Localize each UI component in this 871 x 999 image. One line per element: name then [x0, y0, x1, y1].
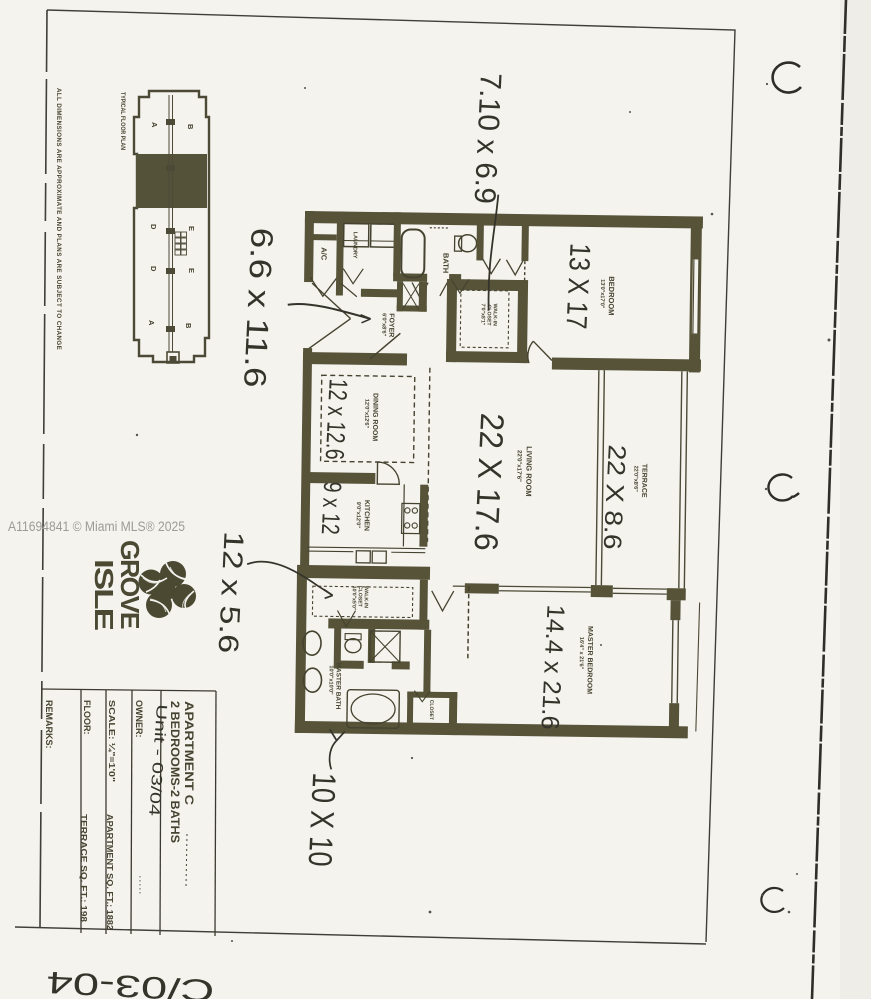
- svg-text:REMARKS:: REMARKS:: [44, 700, 54, 749]
- svg-text:CLOSET: CLOSET: [428, 700, 434, 720]
- svg-text:6'0"x8'6": 6'0"x8'6": [380, 313, 386, 337]
- svg-text:ISLE: ISLE: [89, 559, 119, 631]
- svg-text:22 X 8.6: 22 X 8.6: [598, 444, 631, 550]
- svg-text:E: E: [187, 226, 196, 231]
- svg-text:7.10 x 6.9: 7.10 x 6.9: [468, 72, 507, 204]
- svg-text:D: D: [149, 266, 158, 272]
- svg-text:OWNER:: OWNER:: [134, 700, 144, 738]
- svg-text:APARTMENT SQ. FT.: 1882: APARTMENT SQ. FT.: 1882: [105, 814, 114, 931]
- svg-text:10 X 10: 10 X 10: [302, 772, 344, 868]
- svg-text:APARTMENT C: APARTMENT C: [182, 701, 194, 805]
- svg-text:DINING ROOM: DINING ROOM: [371, 393, 379, 441]
- svg-text:B: B: [184, 323, 193, 329]
- svg-text:KITCHEN: KITCHEN: [363, 500, 370, 531]
- svg-text:TERRACE: TERRACE: [640, 464, 647, 498]
- svg-text:MASTER BEDROOM: MASTER BEDROOM: [585, 626, 593, 694]
- svg-text:12'0"x12'6": 12'0"x12'6": [363, 399, 369, 429]
- svg-text:A: A: [150, 122, 159, 128]
- svg-text:FLOOR:: FLOOR:: [82, 700, 92, 735]
- svg-text:A11694841 © Miami MLS® 2025: A11694841 © Miami MLS® 2025: [8, 519, 185, 534]
- svg-text:22 X 17.6: 22 X 17.6: [468, 412, 512, 552]
- svg-text:13'0"x17'0": 13'0"x17'0": [599, 279, 605, 309]
- svg-text:22'0"x17'6": 22'0"x17'6": [515, 450, 521, 482]
- svg-text:SCALE: ¼"=1'0": SCALE: ¼"=1'0": [107, 700, 117, 782]
- svg-text:TYPICAL FLOOR PLAN: TYPICAL FLOOR PLAN: [119, 92, 126, 150]
- svg-text:12 x 12.6: 12 x 12.6: [320, 378, 354, 460]
- svg-text:9'0"x12'0": 9'0"x12'0": [355, 502, 361, 529]
- svg-text:13 X 17: 13 X 17: [559, 242, 595, 329]
- svg-text:BATH: BATH: [441, 253, 450, 273]
- svg-text:B: B: [186, 124, 195, 130]
- svg-text:7'0"x8'1": 7'0"x8'1": [479, 303, 485, 325]
- svg-text:10'0"x10'0": 10'0"x10'0": [327, 665, 333, 695]
- svg-text:A: A: [147, 320, 156, 326]
- svg-text:12 x 5.6: 12 x 5.6: [213, 531, 250, 654]
- svg-text:LIVING ROOM: LIVING ROOM: [524, 446, 534, 497]
- svg-text:LAUNDRY: LAUNDRY: [351, 232, 357, 259]
- svg-text:MASTER BATH: MASTER BATH: [334, 662, 342, 709]
- svg-text:BEDROOM: BEDROOM: [607, 276, 617, 315]
- svg-text:FOYER: FOYER: [387, 313, 394, 337]
- svg-text:TERRACE SQ. FT.: 198: TERRACE SQ. FT.: 198: [79, 814, 88, 923]
- svg-text:E: E: [187, 268, 196, 273]
- svg-text:D: D: [149, 224, 158, 230]
- svg-text:10'0"x5'0": 10'0"x5'0": [350, 586, 356, 611]
- svg-text:9 x 12: 9 x 12: [316, 481, 347, 535]
- svg-text:16'4" x 21'6": 16'4" x 21'6": [578, 637, 584, 670]
- svg-text:22'0"x8'6": 22'0"x8'6": [632, 466, 638, 493]
- svg-text:2 BEDROOMS-2 BATHS: 2 BEDROOMS-2 BATHS: [168, 701, 180, 843]
- svg-text:A/C: A/C: [319, 247, 328, 261]
- svg-text:ALL DIMENSIONS ARE APPROXIMATE: ALL DIMENSIONS ARE APPROXIMATE AND PLANS…: [55, 88, 62, 350]
